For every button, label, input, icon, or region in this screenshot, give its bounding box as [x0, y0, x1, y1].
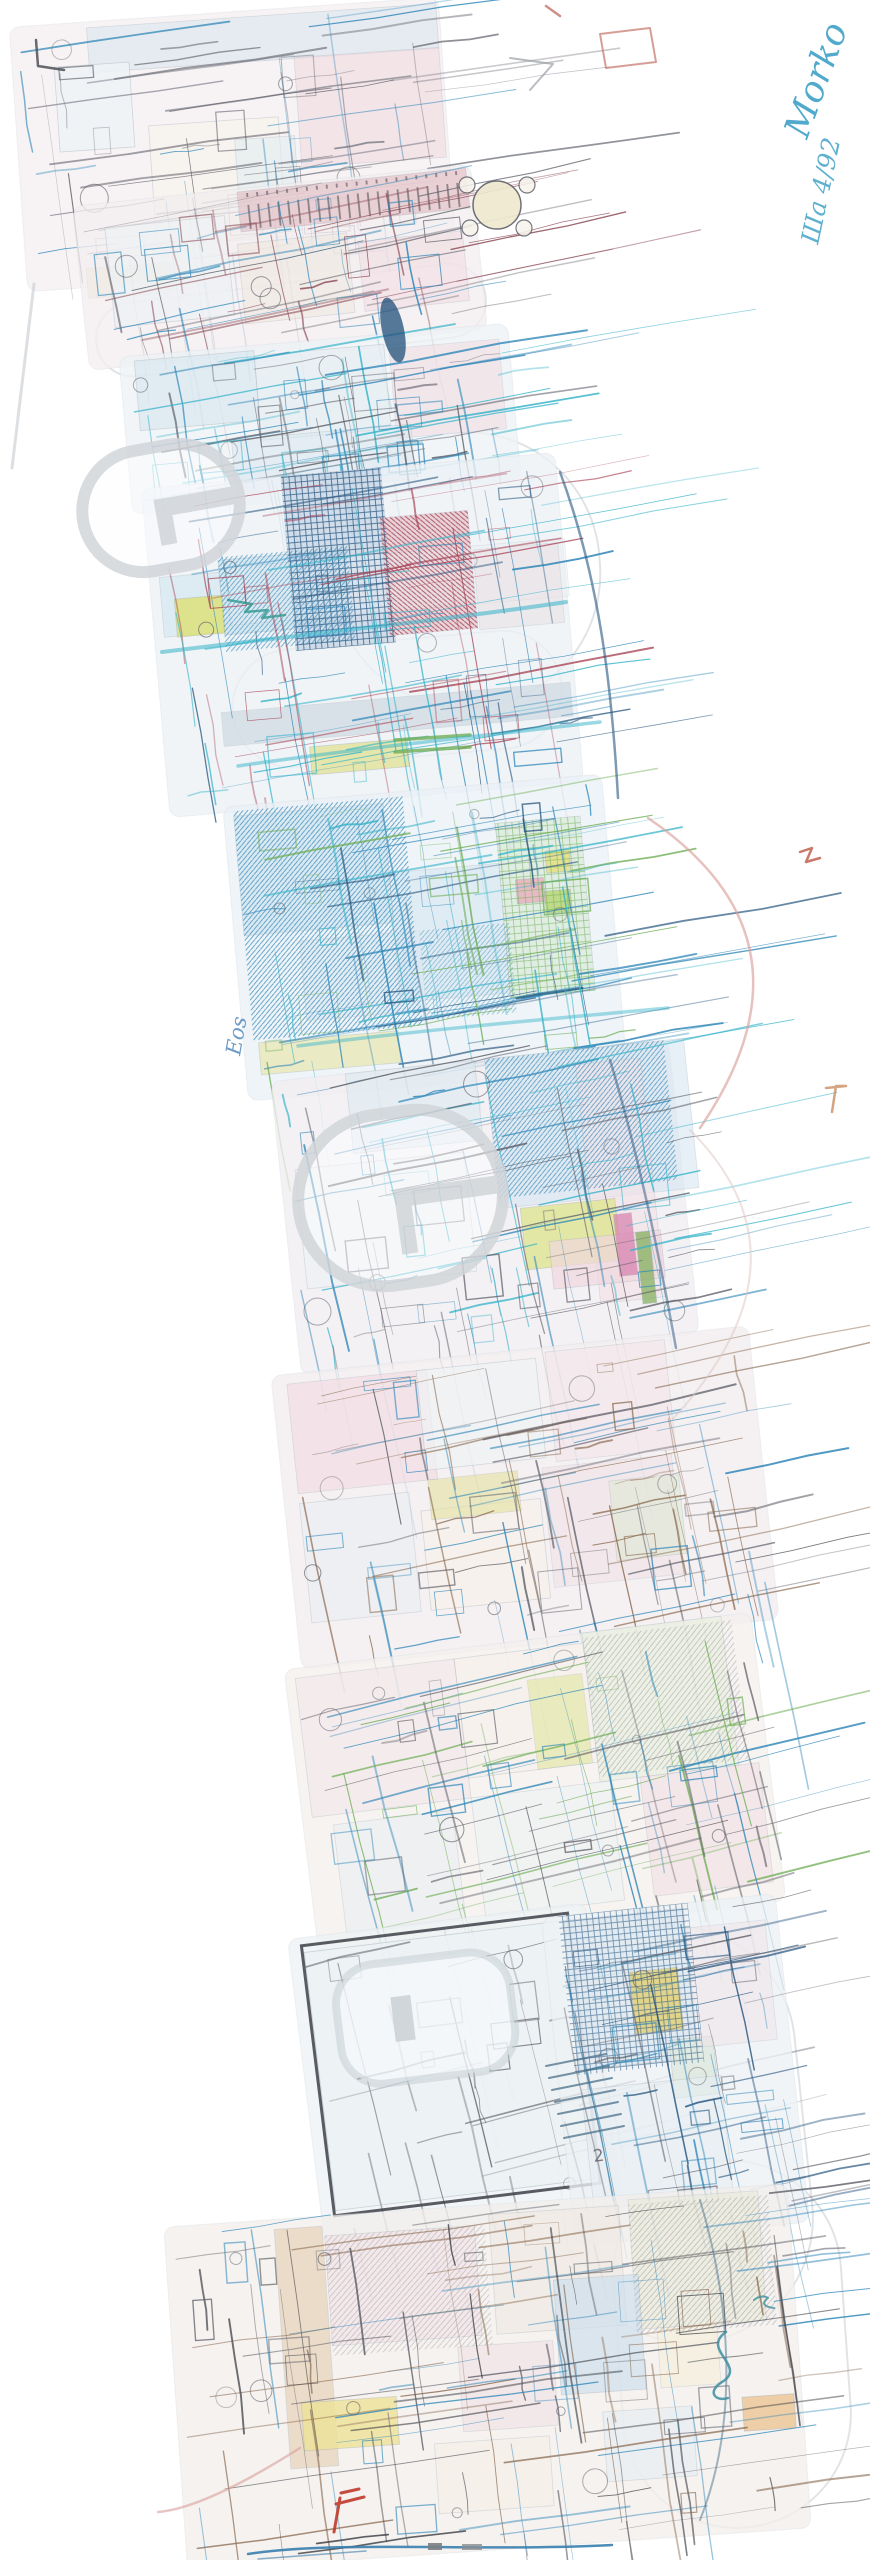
dining-chair-3	[462, 220, 478, 236]
dining-chair-1	[459, 177, 475, 193]
sketch-page: MorkoШа 4/92Eos2	[0, 0, 870, 2560]
handwritten-signature: Morko	[777, 17, 857, 144]
bottom-mark-1	[428, 2543, 442, 2550]
hatch-region	[628, 2195, 777, 2334]
handwritten-date-note: Ша 4/92	[795, 135, 846, 247]
dining-table	[473, 181, 521, 229]
room-fill	[545, 1340, 676, 1462]
room-fill	[434, 2436, 554, 2514]
hatch-region	[233, 796, 422, 1040]
dark-room-inner-blob	[332, 1948, 520, 2088]
red-squiggle-right	[800, 848, 820, 862]
room-fill	[742, 2394, 796, 2432]
room-fill	[295, 1659, 471, 1817]
room-fill	[54, 62, 135, 152]
room-fill	[287, 1370, 438, 1494]
tan-seven-mark	[826, 1086, 846, 1112]
segment-bottom-cluster	[163, 2166, 870, 2560]
red-dash-top	[546, 6, 560, 16]
room-fill	[294, 47, 446, 167]
floor-plan-sketch-collage: MorkoШа 4/92Eos2	[0, 0, 870, 2560]
room-fill	[640, 1763, 774, 1897]
room-fill	[299, 1492, 421, 1623]
dining-chair-4	[516, 220, 532, 236]
room-fill	[134, 351, 260, 431]
hatch-region	[325, 2225, 493, 2356]
left-gray-streak	[12, 284, 34, 468]
red-rect-outline	[600, 28, 656, 68]
room-fill	[416, 1358, 546, 1470]
room-fill	[657, 2324, 721, 2388]
bottom-mark-2	[462, 2544, 482, 2550]
dining-chair-2	[519, 177, 535, 193]
